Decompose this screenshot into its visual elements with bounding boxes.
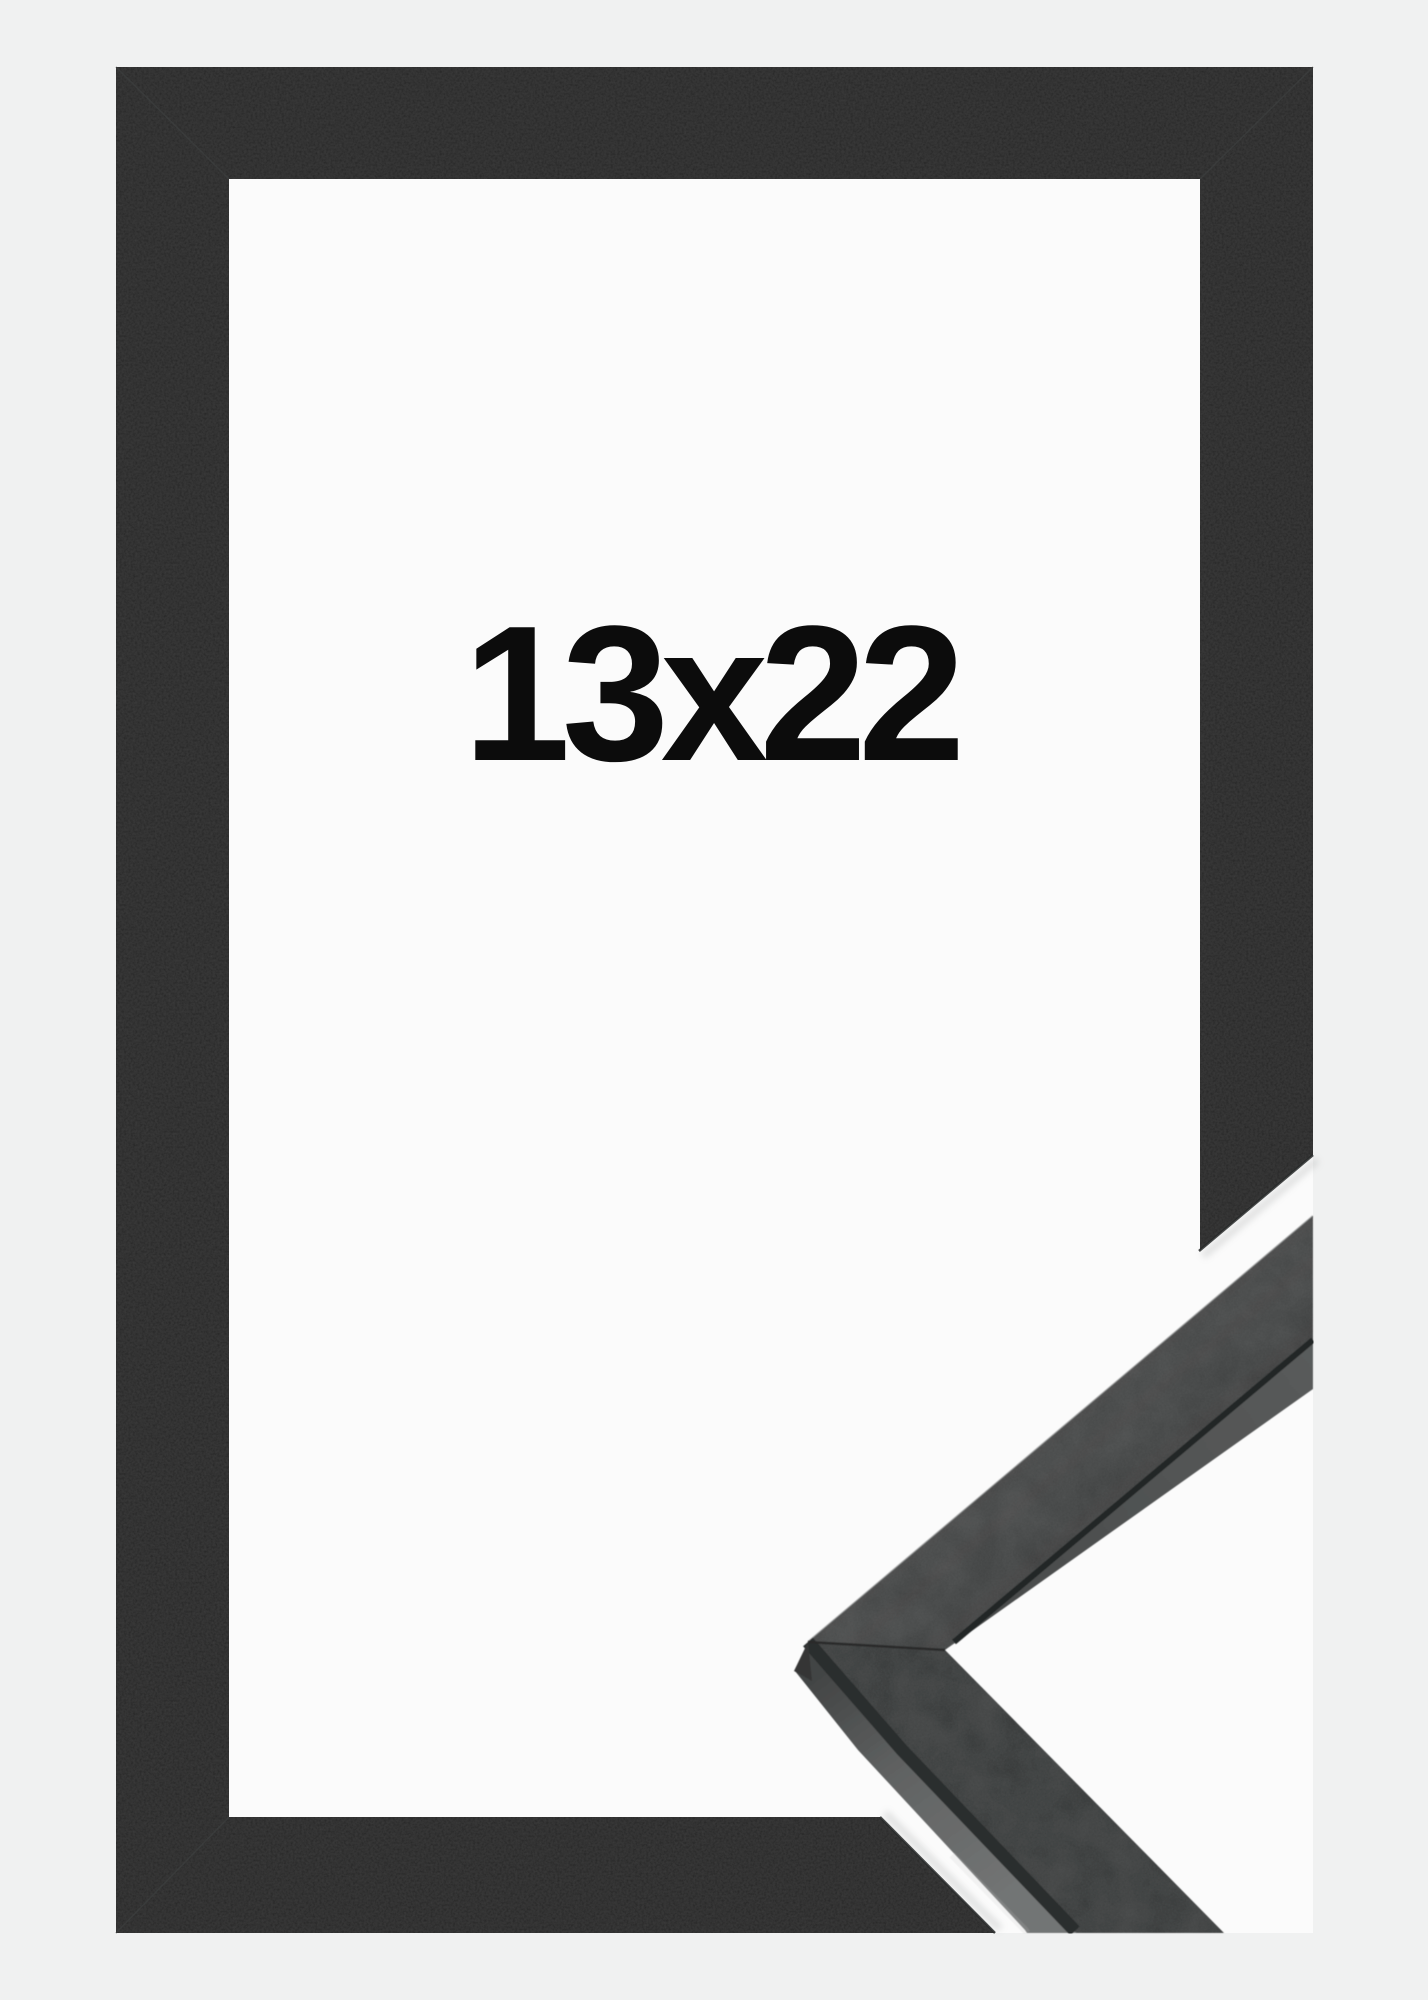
- svg-text:13x22: 13x22: [463, 585, 958, 801]
